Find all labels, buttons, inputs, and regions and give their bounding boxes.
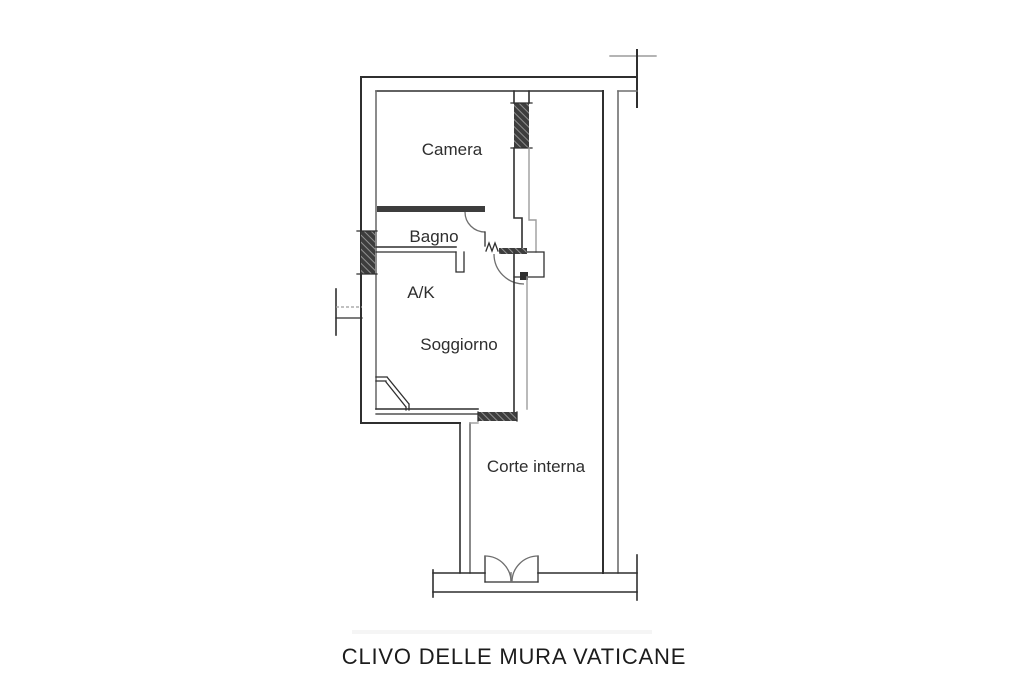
camera-window — [514, 103, 529, 148]
entrance-porch-outline — [514, 252, 544, 277]
entrance-door-zigzag-symbol — [486, 243, 498, 251]
camera-right-wall-lower — [514, 148, 522, 248]
room-label-camera: Camera — [422, 140, 483, 159]
soggiorno-corner-chamfer — [376, 377, 409, 410]
soggiorno-window — [478, 412, 517, 421]
floor-plan-drawing: Camera Bagno A/K Soggiorno Corte interna… — [0, 0, 1024, 682]
camera-right-wall-outer-line — [529, 148, 536, 252]
camera-right-wall-top — [514, 91, 529, 103]
bagno-wall-pier — [456, 252, 464, 272]
camera-bagno-dividing-wall — [377, 206, 485, 212]
street-caption: CLIVO DELLE MURA VATICANE — [342, 644, 686, 669]
bagno-window — [361, 231, 375, 274]
room-label-bagno: Bagno — [409, 227, 458, 246]
room-label-ak: A/K — [407, 283, 435, 302]
entrance-door-swing-arc — [494, 254, 524, 284]
entrance-door-panel — [499, 248, 527, 254]
room-label-corte-interna: Corte interna — [487, 457, 586, 476]
gate-right-door-swing-arc — [512, 556, 538, 582]
room-label-soggiorno: Soggiorno — [420, 335, 498, 354]
scanned-floor-plan-page: Camera Bagno A/K Soggiorno Corte interna… — [0, 0, 1024, 682]
scan-artifact — [352, 630, 652, 634]
gate-left-door-swing-arc — [485, 556, 511, 582]
bagno-door-swing-arc — [465, 212, 485, 232]
